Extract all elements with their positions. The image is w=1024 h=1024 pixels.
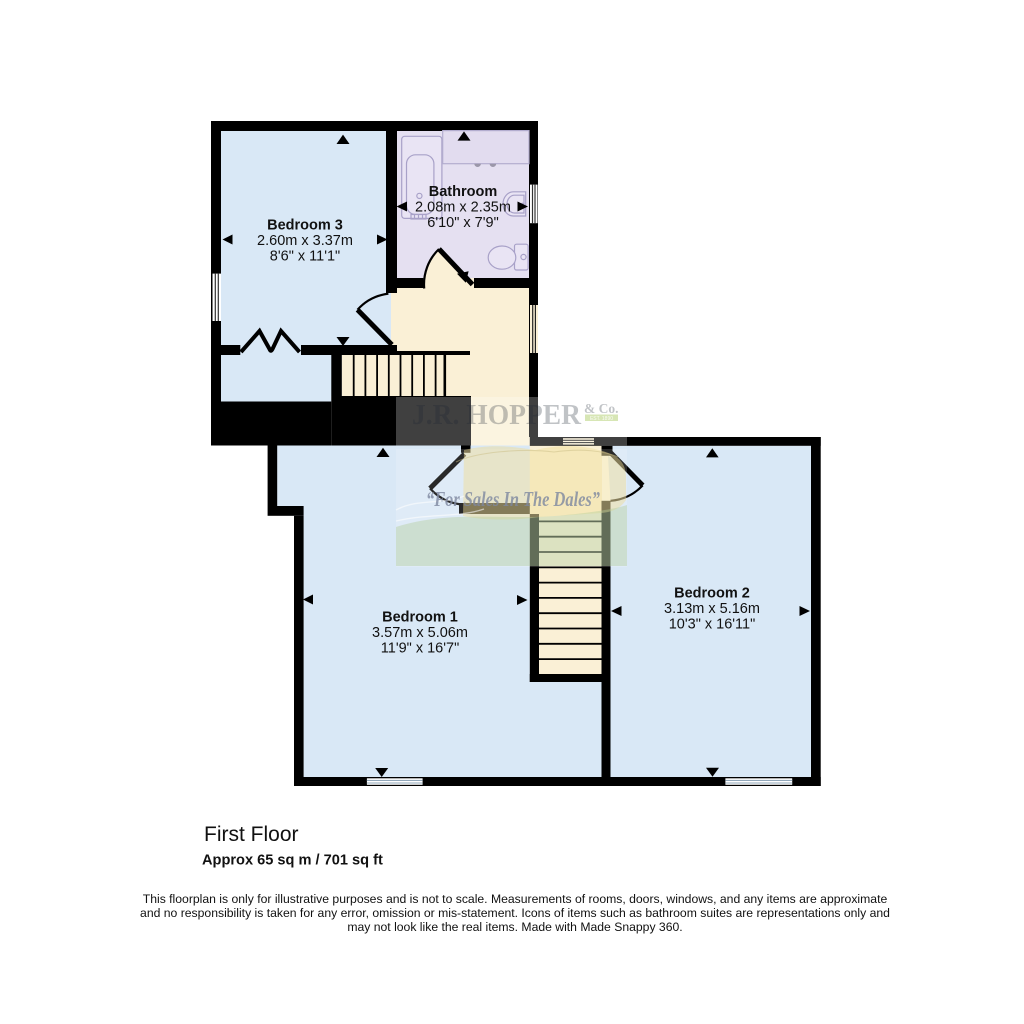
svg-text:10'3" x 16'11": 10'3" x 16'11" <box>669 617 756 633</box>
svg-text:3.57m x 5.06m: 3.57m x 5.06m <box>372 625 468 641</box>
svg-text:Approx 65 sq m / 701 sq ft: Approx 65 sq m / 701 sq ft <box>202 853 383 869</box>
svg-text:11'9" x 16'7": 11'9" x 16'7" <box>381 641 459 657</box>
svg-text:Bedroom 2: Bedroom 2 <box>674 586 750 602</box>
svg-text:8'6" x 11'1": 8'6" x 11'1" <box>270 249 340 265</box>
svg-text:This floorplan is only for ill: This floorplan is only for illustrative … <box>143 892 888 906</box>
svg-text:6'10" x 7'9": 6'10" x 7'9" <box>427 215 498 231</box>
svg-text:may not look like the real ite: may not look like the real items. Made w… <box>347 920 682 934</box>
svg-text:First Floor: First Floor <box>204 823 299 846</box>
svg-text:3.13m x 5.16m: 3.13m x 5.16m <box>664 601 760 617</box>
svg-text:Bedroom 1: Bedroom 1 <box>382 610 458 626</box>
svg-text:J.R. HOPPER: J.R. HOPPER <box>412 400 582 431</box>
svg-text:2.08m x 2.35m: 2.08m x 2.35m <box>415 200 511 216</box>
svg-text:& Co.: & Co. <box>584 401 619 416</box>
svg-text:and no responsibility is taken: and no responsibility is taken for any e… <box>140 906 890 920</box>
svg-text:2.60m x 3.37m: 2.60m x 3.37m <box>257 233 353 249</box>
svg-text:EST. 1890: EST. 1890 <box>590 416 613 422</box>
svg-text:“For Sales In The Dales”: “For Sales In The Dales” <box>426 487 600 511</box>
svg-text:Bathroom: Bathroom <box>429 184 497 200</box>
svg-text:Bedroom 3: Bedroom 3 <box>267 218 343 234</box>
